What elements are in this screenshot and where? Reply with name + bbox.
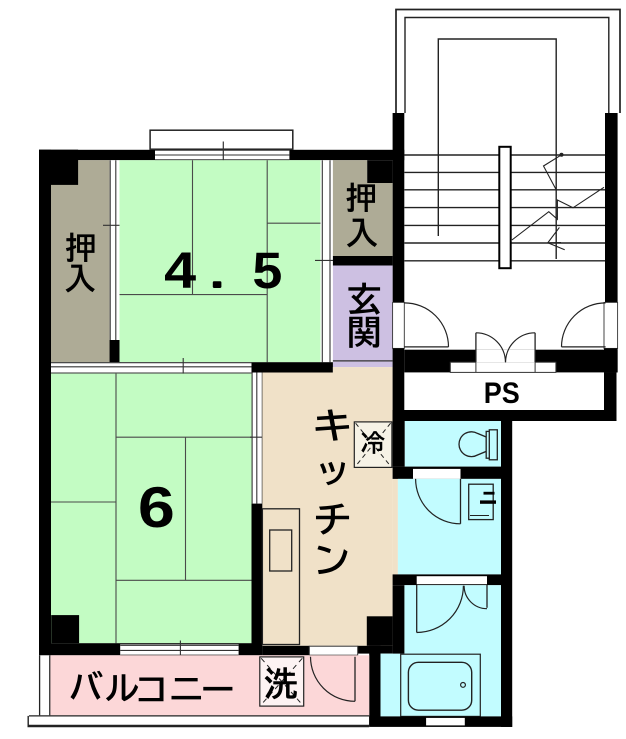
svg-text:6: 6: [138, 476, 175, 540]
svg-text:5: 5: [252, 242, 282, 299]
svg-text:4: 4: [164, 241, 197, 298]
svg-text:PS: PS: [484, 377, 520, 410]
